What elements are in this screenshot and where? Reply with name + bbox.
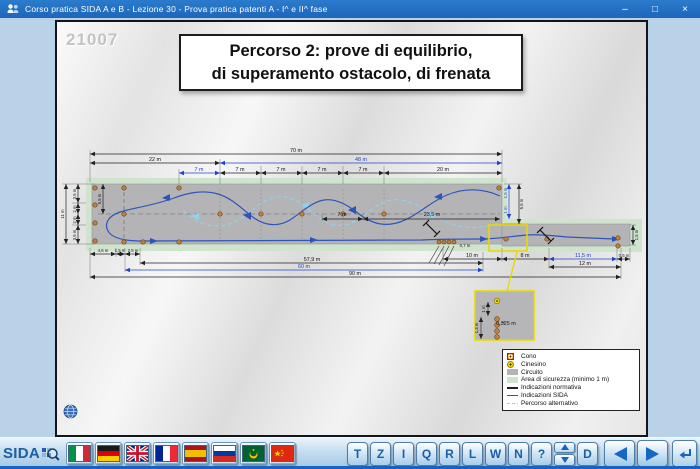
titlebar: Corso pratica SIDA A e B - Lezione 30 - … <box>0 0 700 18</box>
toolbar-right-group: T Z I Q R L W N ? D <box>347 440 697 467</box>
sida-logo-text: SIDA <box>3 445 40 462</box>
normative-line-icon <box>507 387 518 389</box>
dim-label: 1,5 m <box>634 229 639 240</box>
dim-label: 7 m <box>338 212 347 218</box>
key-N-button[interactable]: N <box>508 442 529 466</box>
slide-panel: 21007 Percorso 2: prove di equilibrio, d… <box>55 20 648 437</box>
key-W-button[interactable]: W <box>485 442 506 466</box>
spin-up-button[interactable] <box>554 442 575 454</box>
arrow-up-icon <box>561 444 569 450</box>
dim-label: 1,3 m <box>474 322 479 333</box>
legend-label: Circuito <box>521 369 543 376</box>
dim-label: 5,5 m <box>97 193 102 204</box>
slide-title-line2: di superamento ostacolo, di frenata <box>212 63 491 85</box>
dim-label: 12 m <box>579 261 591 267</box>
alternative-line-icon <box>507 403 518 405</box>
dim-label: 0,5 m <box>619 253 630 258</box>
dim-label: 10 m <box>466 253 478 259</box>
arrow-down-icon <box>561 457 569 463</box>
next-button[interactable] <box>637 440 668 467</box>
dim-label: 7 m <box>195 167 204 173</box>
dim-label: 0,7 m <box>460 243 471 248</box>
safety-area-swatch-icon <box>507 377 518 383</box>
legend-label: Cono <box>521 353 536 360</box>
spinner <box>554 442 575 466</box>
key-help-button[interactable]: ? <box>531 442 552 466</box>
dim-label: 7 m <box>236 167 245 173</box>
search-icon[interactable] <box>41 445 60 463</box>
dim-label: 3,5 m <box>72 188 77 199</box>
key-D-button[interactable]: D <box>577 442 598 466</box>
dim-label: 48 m <box>355 157 367 163</box>
dim-label: 5,5 m <box>519 198 524 209</box>
workspace: 21007 Percorso 2: prove di equilibrio, d… <box>0 18 700 437</box>
legend-label: Indicazioni normativa <box>521 384 581 391</box>
flag-germany-button[interactable] <box>95 442 122 465</box>
flag-uk-button[interactable] <box>124 442 151 465</box>
slide-title-line1: Percorso 2: prove di equilibrio, <box>230 40 473 62</box>
dim-label: 11,5 m <box>575 253 592 259</box>
detail-inset: 1 m 1,3 m 0,325 m <box>474 291 534 340</box>
dim-label: 22 m <box>149 157 161 163</box>
legend-label: Cinesino <box>521 361 546 368</box>
circuit-swatch-icon <box>507 369 518 375</box>
dim-label: 1,5 m <box>503 187 508 198</box>
dim-label: 3,5 m <box>72 229 77 240</box>
sida-logo: SIDA <box>3 445 60 463</box>
toolbar: SIDA <box>0 437 700 469</box>
legend-label: Area di sicurezza (minimo 1 m) <box>521 376 609 383</box>
dim-label: 11 m <box>60 209 65 219</box>
dim-label: 1 m <box>481 305 486 313</box>
minimize-button[interactable]: – <box>610 0 640 18</box>
dim-label: 7 m <box>318 167 327 173</box>
window-title: Corso pratica SIDA A e B - Lezione 30 - … <box>25 4 610 14</box>
globe-icon <box>63 404 78 419</box>
flag-france-button[interactable] <box>153 442 180 465</box>
close-button[interactable]: × <box>670 0 700 18</box>
app-window: Corso pratica SIDA A e B - Lezione 30 - … <box>0 0 700 469</box>
dim-label: 7 m <box>359 167 368 173</box>
key-Z-button[interactable]: Z <box>370 442 391 466</box>
enter-button[interactable] <box>672 440 697 467</box>
dim-label: 2 m <box>72 216 77 224</box>
flag-spain-button[interactable] <box>182 442 209 465</box>
dim-label: 4,5 m <box>98 248 109 253</box>
legend: Cono Cinesino Circuito Area di sicurezza… <box>502 349 640 411</box>
key-T-button[interactable]: T <box>347 442 368 466</box>
dim-label: 20 m <box>437 167 449 173</box>
key-L-button[interactable]: L <box>462 442 483 466</box>
dim-label: 1,5 m <box>115 248 126 253</box>
dim-label: 8 m <box>521 253 530 259</box>
flag-crescent-button[interactable] <box>240 442 267 465</box>
slide-title-box: Percorso 2: prove di equilibrio, di supe… <box>179 34 523 91</box>
dim-label: 90 m <box>349 271 361 277</box>
key-Q-button[interactable]: Q <box>416 442 437 466</box>
arrow-left-icon <box>611 446 629 462</box>
dim-label: 1 m <box>503 206 508 214</box>
flag-china-button[interactable] <box>269 442 296 465</box>
course-diagram: 70 m 22 m 48 m 7 m 7 m 7 m 7 m 7 m 20 m … <box>57 142 646 347</box>
arrow-right-icon <box>644 446 662 462</box>
cone-icon <box>507 353 514 360</box>
dim-label: 0,325 m <box>496 321 516 327</box>
app-icon <box>6 3 20 15</box>
enter-arrow-icon <box>677 446 693 462</box>
spin-down-button[interactable] <box>554 454 575 466</box>
sida-line-icon <box>507 395 518 397</box>
dim-label: 2 m <box>72 205 77 213</box>
key-R-button[interactable]: R <box>439 442 460 466</box>
maximize-button[interactable]: □ <box>640 0 670 18</box>
key-I-button[interactable]: I <box>393 442 414 466</box>
slide-number: 21007 <box>66 30 118 50</box>
dim-label: 60 m <box>298 264 310 270</box>
legend-label: Percorso alternativo <box>521 400 578 407</box>
flag-russia-button[interactable] <box>211 442 238 465</box>
prev-button[interactable] <box>604 440 635 467</box>
dim-label: 7 m <box>277 167 286 173</box>
dim-label: 23,5 m <box>424 212 441 218</box>
flag-italy-button[interactable] <box>66 442 93 465</box>
legend-label: Indicazioni SIDA <box>521 392 568 399</box>
cinesino-icon <box>507 361 514 368</box>
dim-label: 70 m <box>290 148 302 154</box>
dim-label: 57,9 m <box>304 257 321 263</box>
dim-label: 2,5 m <box>128 248 139 253</box>
